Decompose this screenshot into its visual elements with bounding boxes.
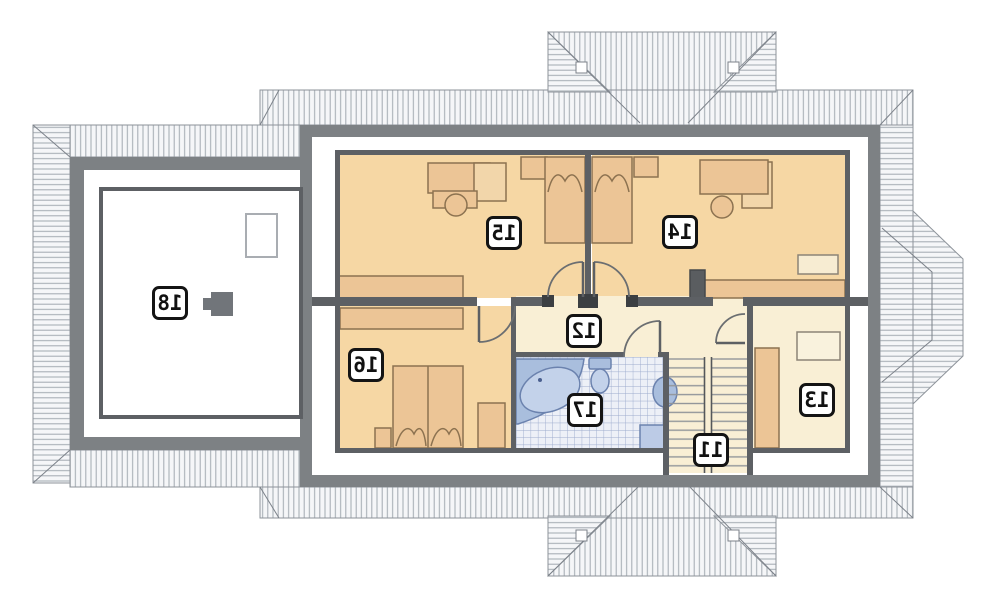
room-label-13: 13 (799, 383, 835, 417)
garage-roof-left-band (33, 125, 70, 483)
tv-unit (690, 270, 705, 300)
shelf (798, 255, 838, 274)
main-roof-right-band (880, 125, 913, 487)
wall-end-cap (626, 295, 638, 307)
chair (445, 194, 467, 216)
floorplan-drawing (0, 0, 1000, 610)
wardrobe (338, 276, 463, 300)
floorplan-canvas: 18 15 14 16 12 17 11 13 (0, 0, 1000, 610)
roof-window-marker (728, 62, 739, 73)
main-roof-top-band (260, 90, 913, 125)
wardrobe (340, 308, 463, 329)
room-label-15: 15 (486, 216, 522, 250)
toilet-tank (589, 358, 611, 369)
room-label-17: 17 (567, 393, 603, 427)
garage-roof-top-band (70, 125, 300, 157)
drain (538, 378, 542, 382)
roof-window-marker (576, 530, 587, 541)
skylight-window (246, 214, 277, 257)
roof-window-marker (576, 62, 587, 73)
chair (711, 196, 733, 218)
nightstand (375, 428, 391, 448)
nightstand (521, 157, 547, 179)
room-label-18: 18 (152, 286, 188, 320)
nightstand (478, 403, 505, 448)
washing-machine (640, 425, 664, 449)
room-label-16: 16 (348, 348, 384, 382)
roof-window-marker (728, 530, 739, 541)
room-18 (101, 189, 301, 417)
dresser (797, 332, 840, 360)
main-roof-bottom-band (260, 487, 913, 518)
desk-return (474, 163, 506, 201)
sideboard (692, 280, 845, 298)
room-label-14: 14 (662, 215, 698, 249)
wardrobe (755, 348, 779, 448)
desk (700, 160, 768, 194)
toilet-bowl (591, 369, 609, 393)
room-label-12: 12 (566, 314, 602, 348)
bed (592, 157, 632, 243)
bed (545, 157, 585, 243)
room-label-11: 11 (693, 433, 729, 467)
nightstand (634, 157, 658, 177)
garage-roof-bottom-band (70, 450, 300, 487)
